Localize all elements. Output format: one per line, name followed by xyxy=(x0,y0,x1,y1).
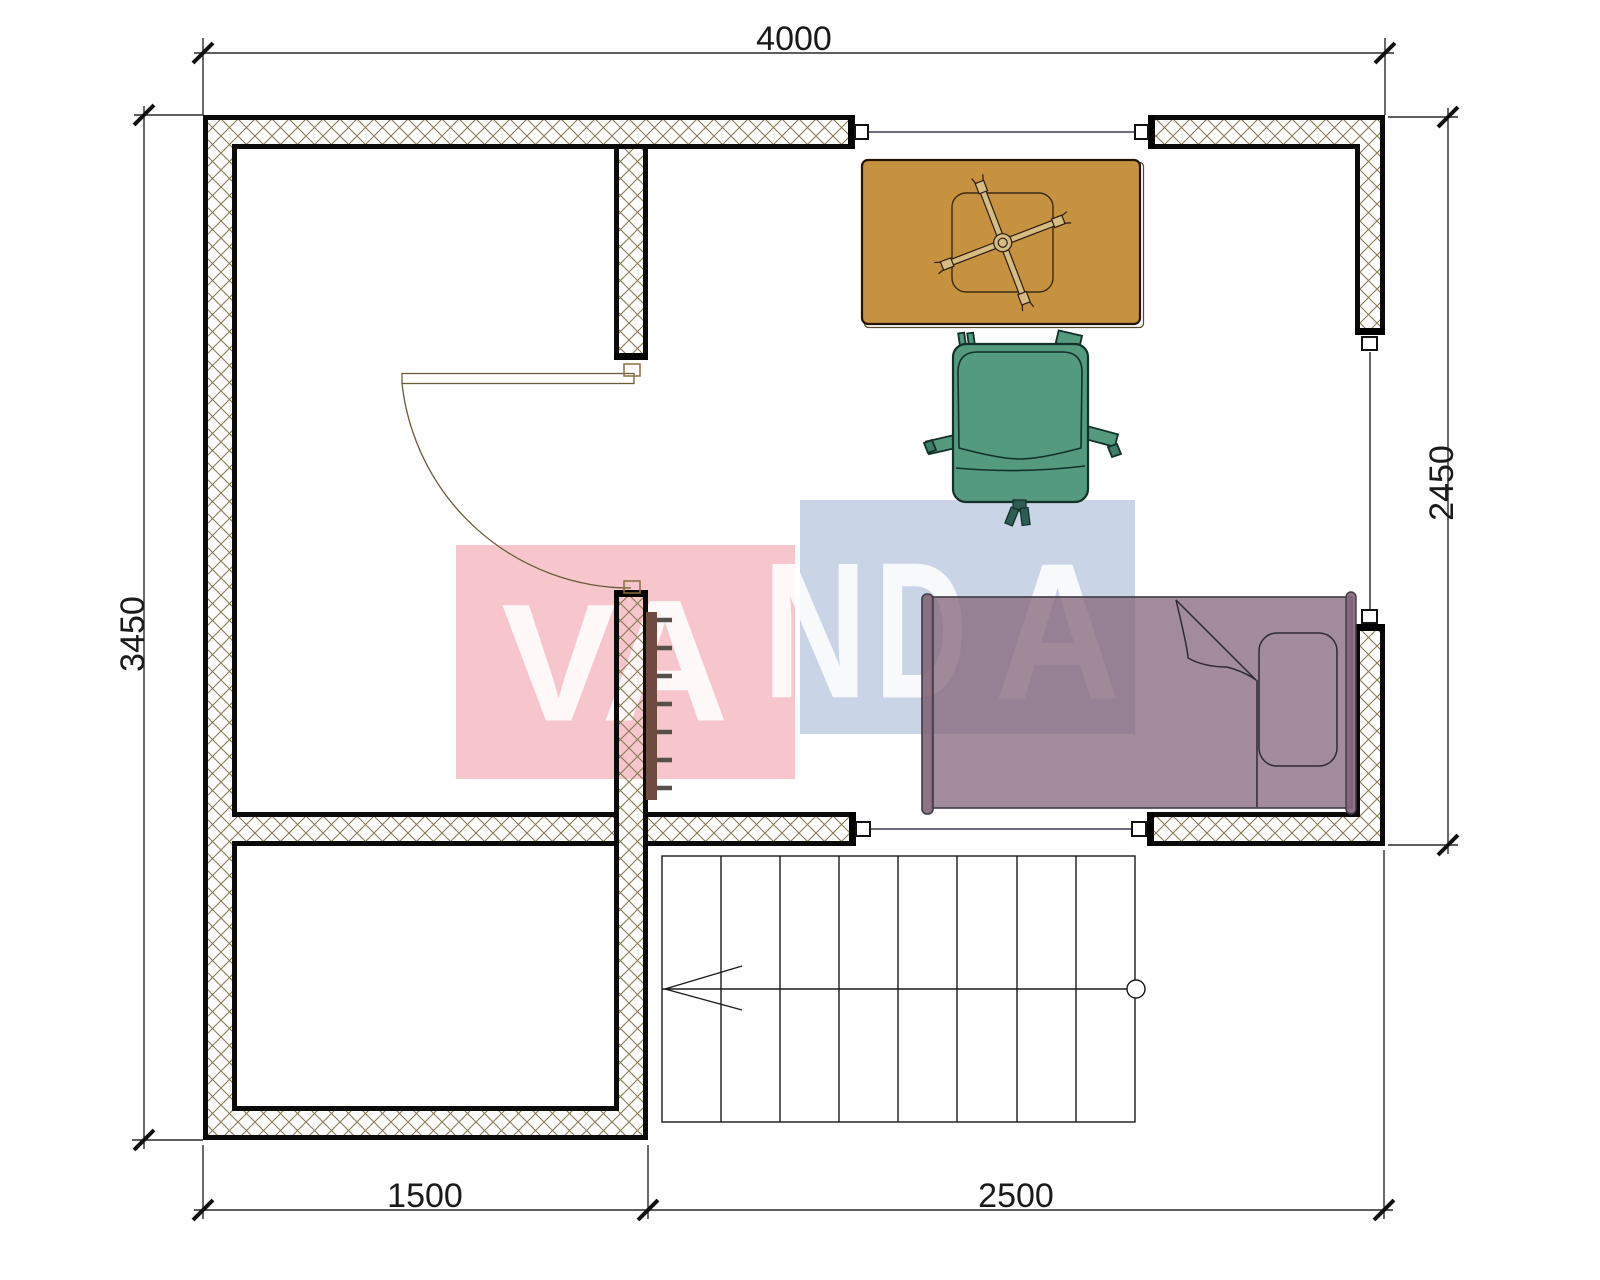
svg-text:4000: 4000 xyxy=(756,20,832,58)
svg-text:2450: 2450 xyxy=(1423,445,1461,521)
svg-text:V: V xyxy=(502,571,615,756)
svg-text:1500: 1500 xyxy=(387,1177,463,1215)
svg-text:2500: 2500 xyxy=(978,1177,1054,1215)
svg-text:3450: 3450 xyxy=(114,596,152,672)
svg-text:N: N xyxy=(763,522,867,738)
